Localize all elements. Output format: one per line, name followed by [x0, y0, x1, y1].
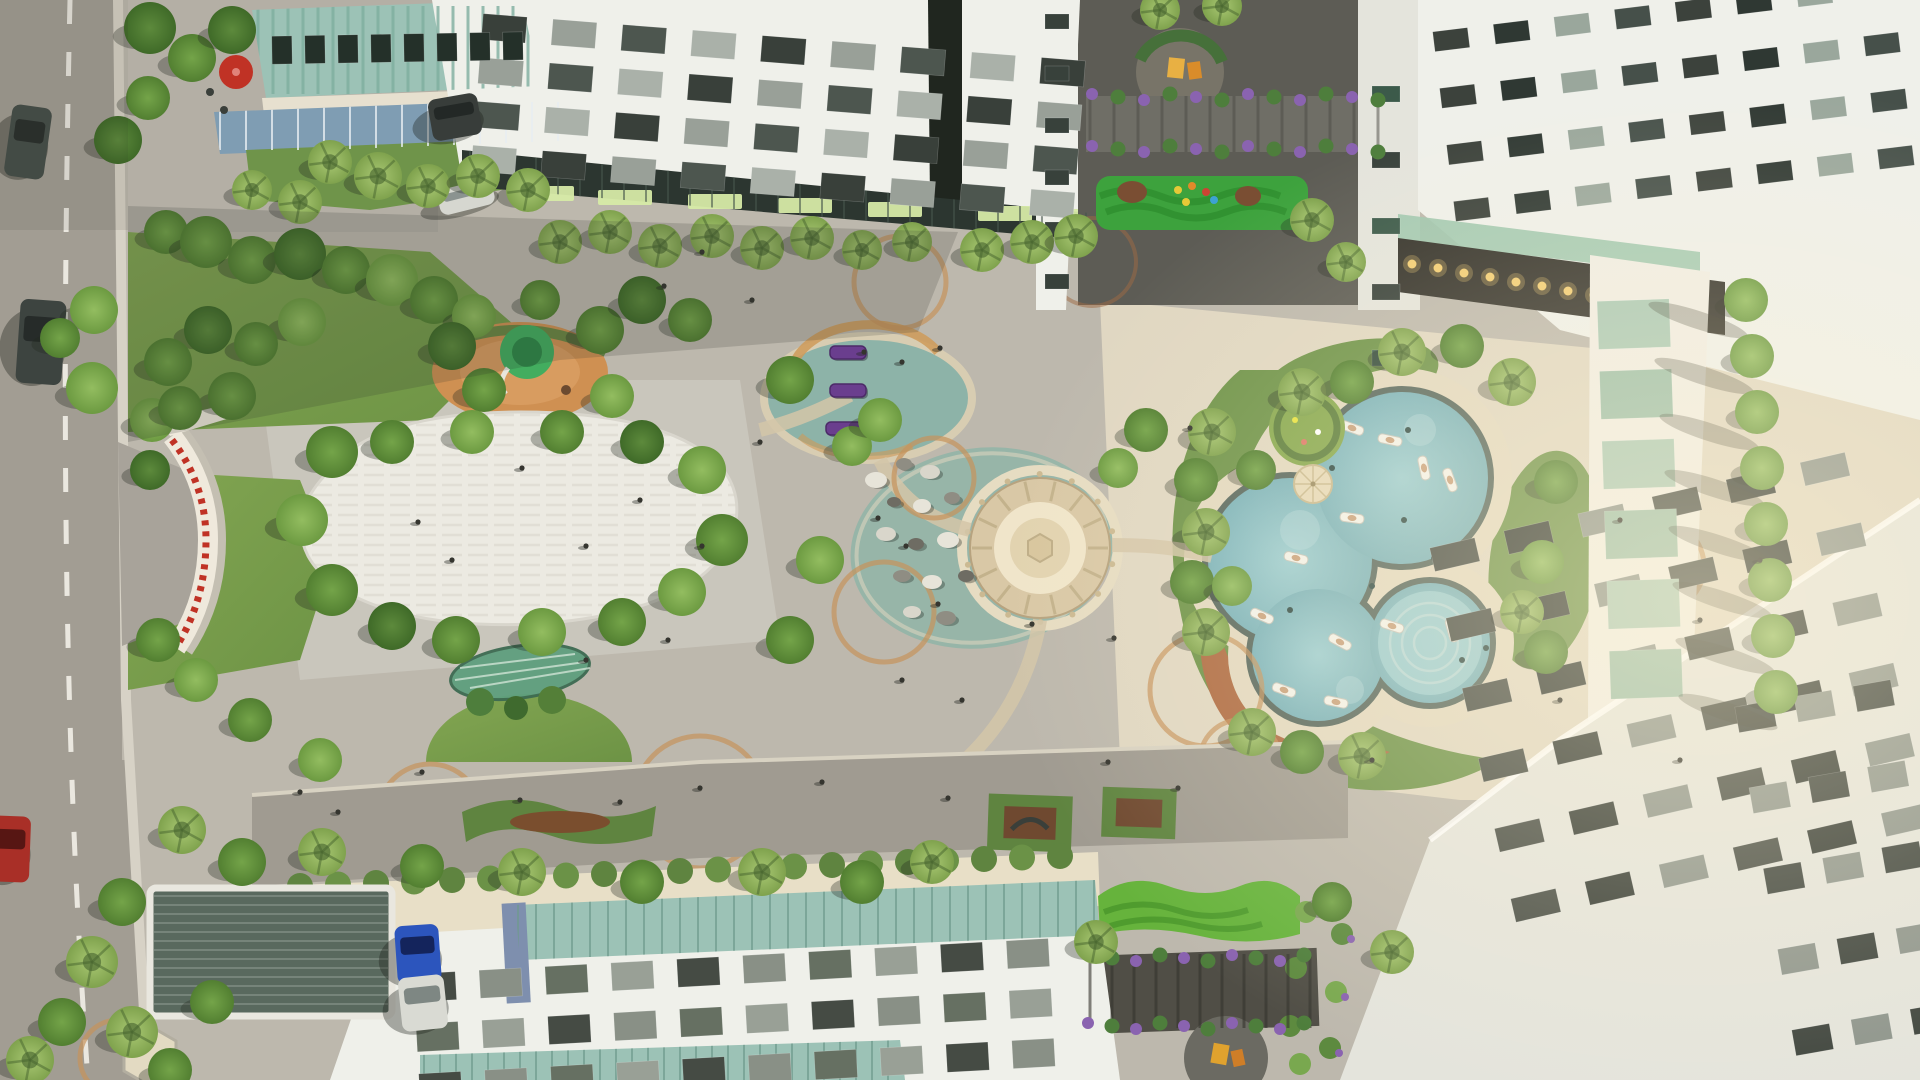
window — [305, 35, 325, 63]
wisteria-cluster — [1138, 146, 1150, 158]
window — [545, 964, 588, 994]
window — [880, 1046, 923, 1076]
window — [1009, 988, 1052, 1018]
car — [0, 815, 32, 886]
window — [1440, 84, 1477, 108]
tree — [658, 568, 706, 616]
person — [699, 543, 704, 548]
tree — [540, 410, 584, 454]
yellow-play-structure — [1210, 1043, 1229, 1065]
wisteria-cluster — [1082, 1017, 1094, 1029]
shrub — [1153, 1016, 1168, 1031]
person — [665, 637, 670, 642]
tree — [590, 374, 634, 418]
tree — [368, 602, 416, 650]
window — [548, 63, 594, 92]
wisteria-cluster — [1190, 91, 1202, 103]
window — [1006, 938, 1049, 968]
window — [940, 942, 983, 972]
cafe-table — [206, 88, 214, 96]
boulder — [922, 575, 942, 589]
window — [811, 999, 854, 1029]
window — [611, 961, 654, 991]
wisteria-cluster — [1242, 88, 1254, 100]
window — [1029, 189, 1075, 218]
wisteria-cluster — [1346, 91, 1358, 103]
wisteria-cluster — [1274, 1023, 1286, 1035]
tree — [450, 410, 494, 454]
person — [935, 601, 940, 606]
tree — [98, 878, 146, 926]
person — [335, 809, 340, 814]
window — [621, 25, 667, 54]
boulder — [887, 497, 901, 507]
window — [548, 1014, 591, 1044]
person — [819, 779, 824, 784]
window — [478, 57, 524, 86]
aerial-render-stage: Aerial top-down 3D rendering of a reside… — [0, 0, 1920, 1080]
tree — [174, 658, 218, 702]
window — [1433, 28, 1470, 52]
shrub — [1201, 1022, 1216, 1037]
tree — [298, 738, 342, 782]
shrub — [1249, 1019, 1264, 1034]
boulder — [920, 465, 940, 479]
boulder — [876, 527, 896, 541]
window — [874, 946, 917, 976]
shrub — [1215, 145, 1230, 160]
window — [679, 1007, 722, 1037]
hedge-bump — [1009, 845, 1035, 871]
person — [937, 345, 942, 350]
window — [943, 992, 986, 1022]
tree — [796, 536, 844, 584]
wisteria-cluster — [1130, 1023, 1142, 1035]
window — [890, 178, 936, 207]
boulder — [913, 499, 931, 513]
window — [614, 1010, 657, 1040]
tree — [136, 618, 180, 662]
window — [616, 1060, 659, 1080]
cafe-table — [220, 106, 228, 114]
window — [687, 74, 733, 103]
wisteria-cluster — [1086, 88, 1098, 100]
tree — [126, 76, 170, 120]
window — [691, 30, 737, 59]
window — [959, 184, 1005, 213]
tree — [66, 362, 118, 414]
window — [1045, 118, 1069, 133]
boulder — [896, 458, 912, 470]
orange-play-structure — [1187, 61, 1202, 80]
person — [903, 543, 908, 548]
hedge-bump — [705, 857, 731, 883]
shrub — [1319, 87, 1334, 102]
mandala-dot — [979, 591, 985, 597]
tree — [218, 838, 266, 886]
window — [814, 1049, 857, 1079]
window — [1493, 20, 1530, 44]
window — [503, 32, 523, 60]
person — [757, 439, 762, 444]
window — [677, 957, 720, 987]
window — [946, 1042, 989, 1072]
boulder — [865, 472, 887, 488]
person — [899, 677, 904, 682]
tree — [678, 446, 726, 494]
wisteria-cluster — [1190, 143, 1202, 155]
window — [550, 1064, 593, 1080]
window — [753, 123, 799, 152]
window — [541, 151, 587, 180]
hedge-bump — [667, 858, 693, 884]
wisteria-cluster — [1294, 146, 1306, 158]
window — [760, 36, 806, 65]
pergola-walkway — [1086, 96, 1390, 152]
person — [861, 349, 866, 354]
window — [610, 156, 656, 185]
person — [959, 697, 964, 702]
hedge-bump — [591, 861, 617, 887]
window — [485, 1068, 528, 1080]
person — [697, 785, 702, 790]
street-shade — [0, 0, 128, 230]
person — [519, 465, 524, 470]
person — [449, 557, 454, 562]
window — [1045, 66, 1069, 81]
window — [757, 79, 803, 108]
window — [823, 129, 869, 158]
car-glass — [0, 829, 26, 850]
window — [470, 32, 490, 60]
person — [637, 497, 642, 502]
window — [900, 47, 946, 76]
window — [1742, 47, 1779, 71]
person — [583, 657, 588, 662]
window — [748, 1053, 791, 1080]
tree — [124, 2, 176, 54]
window — [970, 52, 1016, 81]
window — [371, 34, 391, 62]
yellow-play-structure — [1167, 57, 1185, 79]
window — [1803, 40, 1840, 64]
wisteria-cluster — [1242, 140, 1254, 152]
tree — [840, 860, 884, 904]
tree — [432, 616, 480, 664]
window — [1045, 14, 1069, 29]
person — [617, 799, 622, 804]
umbrella-top — [232, 68, 240, 76]
tree — [306, 426, 358, 478]
window — [1045, 170, 1069, 185]
wisteria-cluster — [1294, 94, 1306, 106]
wisteria-cluster — [1226, 1017, 1238, 1029]
tree — [130, 450, 170, 490]
window — [893, 134, 939, 163]
window — [1682, 54, 1719, 78]
window — [614, 112, 660, 141]
window — [966, 96, 1012, 125]
person — [875, 515, 880, 520]
mandala-dot — [965, 562, 971, 568]
boulder — [908, 538, 924, 550]
window — [750, 167, 796, 196]
window — [963, 140, 1009, 169]
pavilion-shrub — [538, 686, 566, 714]
shrub — [1163, 139, 1178, 154]
tree — [276, 494, 328, 546]
hedge-bump — [971, 846, 997, 872]
person — [517, 797, 522, 802]
wisteria-cluster — [1086, 140, 1098, 152]
boulder — [958, 570, 974, 582]
window — [437, 33, 457, 61]
purple-bench — [830, 384, 866, 397]
window — [1012, 1038, 1055, 1068]
person — [583, 543, 588, 548]
hedge-bump — [553, 863, 579, 889]
tree — [766, 356, 814, 404]
hedge-mulch — [510, 811, 610, 833]
play-item — [561, 385, 571, 395]
window — [1675, 0, 1712, 22]
window — [1863, 32, 1900, 56]
tree — [228, 698, 272, 742]
balcony-wisteria — [1335, 1049, 1343, 1057]
tree — [38, 998, 86, 1046]
tree — [400, 844, 444, 888]
person — [899, 359, 904, 364]
tree — [620, 420, 664, 464]
courtyard-aerial-scene — [0, 0, 1920, 1080]
tree — [40, 318, 80, 358]
tree — [766, 616, 814, 664]
tree — [518, 608, 566, 656]
person — [297, 789, 302, 794]
shrub — [1319, 139, 1334, 154]
pavilion-shrub — [466, 688, 494, 716]
hedge-bump — [819, 852, 845, 878]
tree — [620, 860, 664, 904]
window — [544, 107, 590, 136]
window — [482, 1018, 525, 1048]
shrub — [1267, 142, 1282, 157]
window — [1614, 5, 1651, 29]
lit-window — [778, 198, 832, 213]
window — [404, 34, 424, 62]
tree — [190, 980, 234, 1024]
tree — [70, 286, 118, 334]
boulder — [944, 492, 960, 504]
window — [338, 35, 358, 63]
window — [830, 41, 876, 70]
pavilion-shrub — [504, 696, 528, 720]
shrub — [1163, 87, 1178, 102]
tree — [696, 514, 748, 566]
window — [680, 162, 726, 191]
wisteria-cluster — [1178, 1020, 1190, 1032]
window — [684, 118, 730, 147]
tree — [370, 420, 414, 464]
window — [827, 85, 873, 114]
person — [415, 519, 420, 524]
tree — [598, 598, 646, 646]
window — [745, 1003, 788, 1033]
tree — [208, 6, 256, 54]
wisteria-cluster — [1138, 94, 1150, 106]
shrub — [1215, 93, 1230, 108]
window — [743, 953, 786, 983]
person — [419, 769, 424, 774]
boulder — [893, 570, 911, 582]
tree — [306, 564, 358, 616]
shrub — [1371, 93, 1386, 108]
mandala-dot — [1005, 478, 1011, 484]
window — [877, 996, 920, 1026]
window — [820, 173, 866, 202]
window — [551, 19, 597, 48]
shrub — [1111, 90, 1126, 105]
person — [945, 795, 950, 800]
balcony-shrub — [1289, 1053, 1311, 1075]
window — [617, 68, 663, 97]
wisteria-cluster — [1130, 955, 1142, 967]
window — [808, 950, 851, 980]
hedge-bump — [1047, 843, 1073, 869]
window — [682, 1057, 725, 1080]
window — [896, 90, 942, 119]
mandala-dot — [979, 499, 985, 505]
glass-trellis-carport — [150, 888, 392, 1016]
boulder — [936, 611, 956, 625]
boulder — [903, 606, 921, 618]
window — [272, 36, 292, 64]
boulder — [937, 532, 959, 548]
window — [1554, 13, 1591, 37]
window — [1045, 274, 1069, 289]
shrub — [1267, 90, 1282, 105]
window — [479, 968, 522, 998]
car-glass — [400, 935, 435, 955]
shrub — [1153, 948, 1168, 963]
shrub — [1105, 1019, 1120, 1034]
shrub — [1111, 142, 1126, 157]
tree — [858, 398, 902, 442]
